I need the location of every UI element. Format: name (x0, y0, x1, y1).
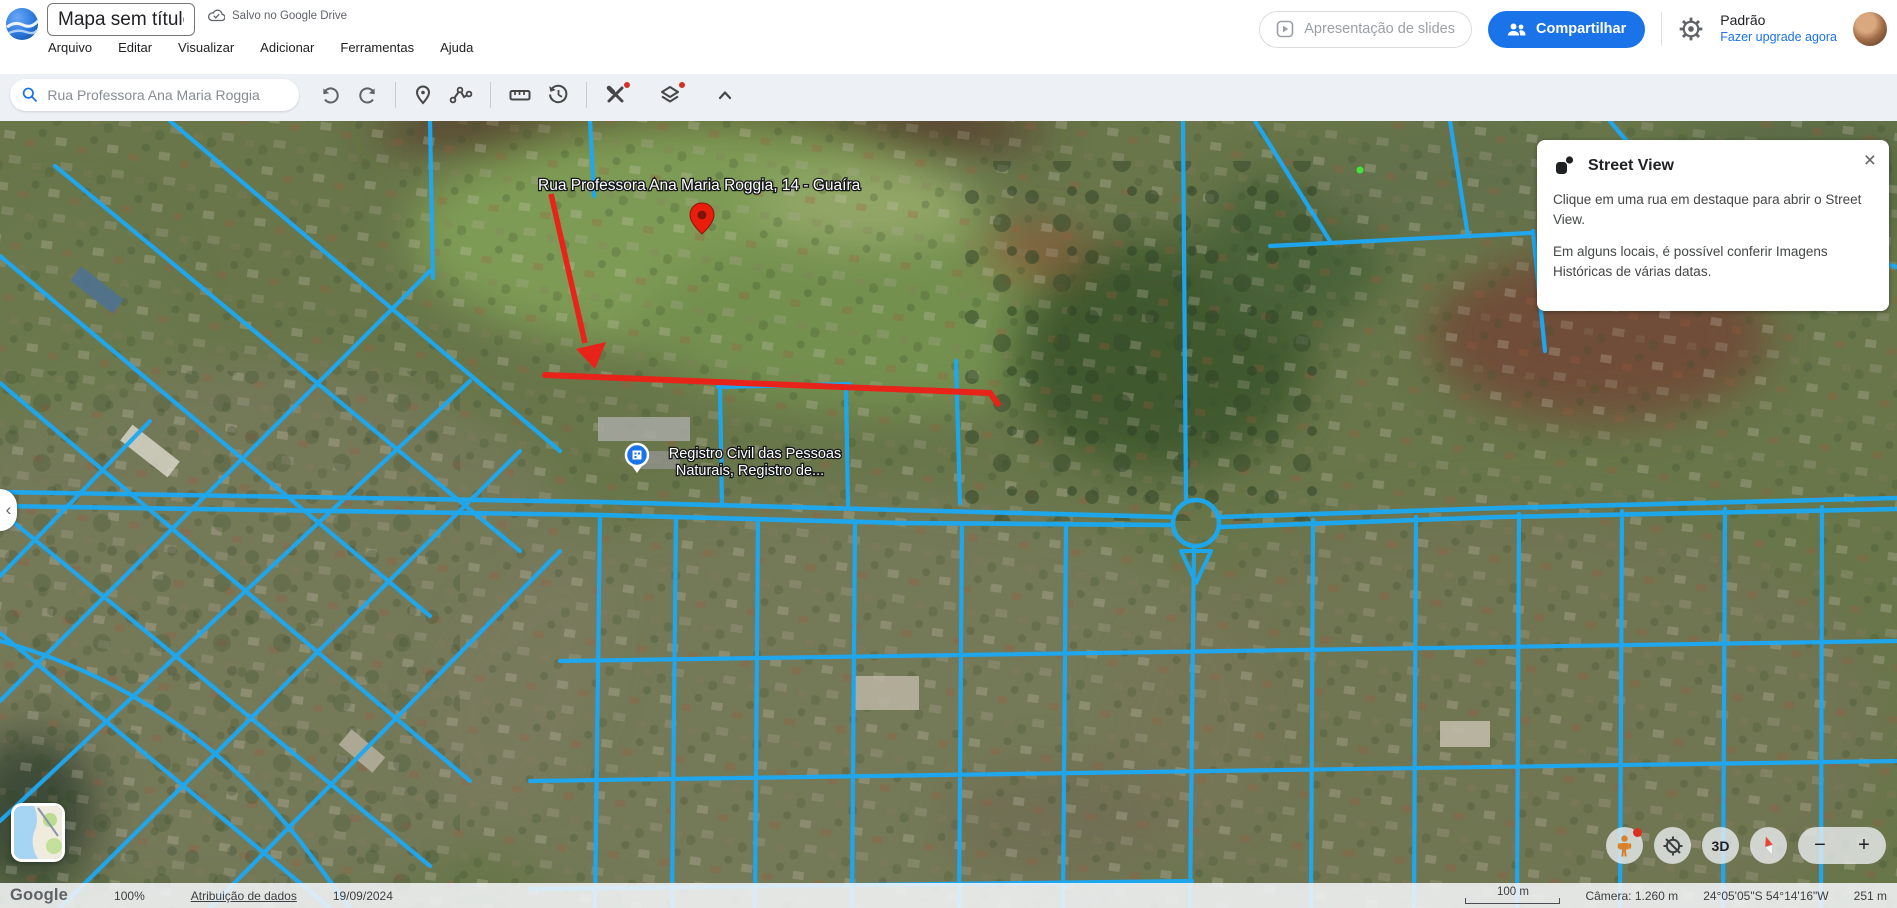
google-logo: Google (10, 886, 68, 905)
camera-altitude: Câmera: 1.260 m (1585, 889, 1678, 903)
share-label: Compartilhar (1536, 21, 1626, 37)
slideshow-icon (1276, 20, 1294, 38)
toolbar-divider (490, 82, 491, 108)
address-label: Rua Professora Ana Maria Roggia, 14 - Gu… (538, 177, 861, 194)
chevron-up-icon (715, 85, 735, 105)
placemark-icon (412, 84, 434, 106)
app-header: Salvo no Google Drive Arquivo Editar Vis… (0, 0, 1897, 74)
account-plan-block: Padrão Fazer upgrade agora (1720, 12, 1837, 45)
my-location-button[interactable] (1654, 827, 1691, 864)
street-view-panel: Street View × Clique em uma rua em desta… (1537, 140, 1889, 311)
share-button[interactable]: Compartilhar (1488, 11, 1645, 48)
compass-needle-icon (1759, 835, 1779, 857)
coordinates: 24°05'05"S 54°14'16"W (1703, 889, 1828, 903)
chevron-left-icon: ‹ (6, 500, 12, 520)
overview-minimap[interactable] (11, 803, 65, 862)
map-controls: 3D − + (1606, 827, 1886, 864)
pegman-icon (1615, 835, 1634, 857)
header-divider (1661, 12, 1662, 46)
redo-button[interactable] (349, 76, 387, 114)
notification-dot (623, 81, 631, 89)
redo-icon (357, 84, 379, 106)
menu-arquivo[interactable]: Arquivo (46, 39, 94, 56)
close-icon[interactable]: × (1864, 150, 1876, 171)
notification-dot (678, 81, 686, 89)
toolbar-divider (395, 82, 396, 108)
minimap-graphic (14, 806, 62, 859)
menu-editar[interactable]: Editar (116, 39, 154, 56)
pegman-button[interactable] (1606, 827, 1643, 864)
historical-imagery-button[interactable] (539, 76, 577, 114)
zoom-in-button[interactable]: + (1858, 834, 1870, 857)
data-attribution-link[interactable]: Atribuição de dados (191, 889, 297, 903)
earth-toolbar (0, 74, 1897, 121)
street-view-title: Street View (1588, 157, 1674, 175)
people-icon (1507, 22, 1526, 37)
upgrade-link[interactable]: Fazer upgrade agora (1720, 30, 1837, 46)
poi-label-line1: Registro Civil das Pessoas (669, 446, 841, 462)
pegman-panel-icon (1553, 155, 1575, 177)
collapse-toolbar-button[interactable] (706, 76, 744, 114)
google-earth-logo (5, 7, 39, 41)
toolbar-divider (586, 82, 587, 108)
scale-label: 100 m (1497, 886, 1529, 898)
status-bar: Google 100% Atribuição de dados 19/09/20… (0, 883, 1897, 908)
undo-icon (319, 84, 341, 106)
street-view-instruction: Clique em uma rua em destaque para abrir… (1553, 190, 1873, 229)
map-viewport[interactable]: Rua Professora Ana Maria Roggia, 14 - Gu… (0, 121, 1897, 908)
zoom-control: − + (1798, 827, 1886, 864)
map-title-box[interactable] (47, 3, 195, 36)
ruler-icon (508, 84, 532, 106)
account-plan-label: Padrão (1720, 12, 1837, 30)
historical-imagery-icon (547, 83, 570, 106)
poi-label-line2: Naturais, Registro de... (676, 463, 824, 479)
3d-label: 3D (1712, 838, 1730, 854)
search-box[interactable] (10, 79, 299, 111)
green-dot-marker (1357, 167, 1364, 174)
slideshow-button[interactable]: Apresentação de slides (1259, 11, 1472, 48)
cloud-check-icon (208, 9, 225, 22)
street-view-note: Em alguns locais, é possível conferir Im… (1553, 242, 1873, 281)
menu-ferramentas[interactable]: Ferramentas (338, 39, 416, 56)
menu-adicionar[interactable]: Adicionar (258, 39, 316, 56)
draw-path-icon (449, 84, 473, 106)
measure-button[interactable] (501, 76, 539, 114)
search-input[interactable] (47, 87, 287, 103)
save-status: Salvo no Google Drive (208, 9, 347, 22)
scale-bar (1465, 898, 1560, 904)
3d-toggle-button[interactable]: 3D (1702, 827, 1739, 864)
menu-bar: Arquivo Editar Visualizar Adicionar Ferr… (46, 39, 475, 56)
elevation: 251 m (1854, 889, 1887, 903)
map-scale: 100 m (1465, 888, 1560, 904)
notification-dot (1633, 828, 1642, 837)
menu-ajuda[interactable]: Ajuda (438, 39, 475, 56)
search-icon (22, 86, 37, 103)
compass-button[interactable] (1750, 827, 1787, 864)
menu-visualizar[interactable]: Visualizar (176, 39, 236, 56)
add-placemark-button[interactable] (404, 76, 442, 114)
save-status-text: Salvo no Google Drive (232, 10, 347, 22)
settings-gear-icon[interactable] (1678, 16, 1704, 42)
map-title-input[interactable] (48, 4, 194, 35)
layers-button[interactable] (651, 76, 689, 114)
location-off-icon (1662, 835, 1684, 857)
zoom-out-button[interactable]: − (1814, 834, 1826, 857)
map-style-button[interactable] (596, 76, 634, 114)
imagery-quality: 100% (114, 889, 145, 903)
undo-button[interactable] (311, 76, 349, 114)
slideshow-label: Apresentação de slides (1304, 21, 1455, 37)
draw-path-button[interactable] (442, 76, 480, 114)
account-avatar[interactable] (1853, 12, 1887, 46)
imagery-date: 19/09/2024 (333, 889, 393, 903)
